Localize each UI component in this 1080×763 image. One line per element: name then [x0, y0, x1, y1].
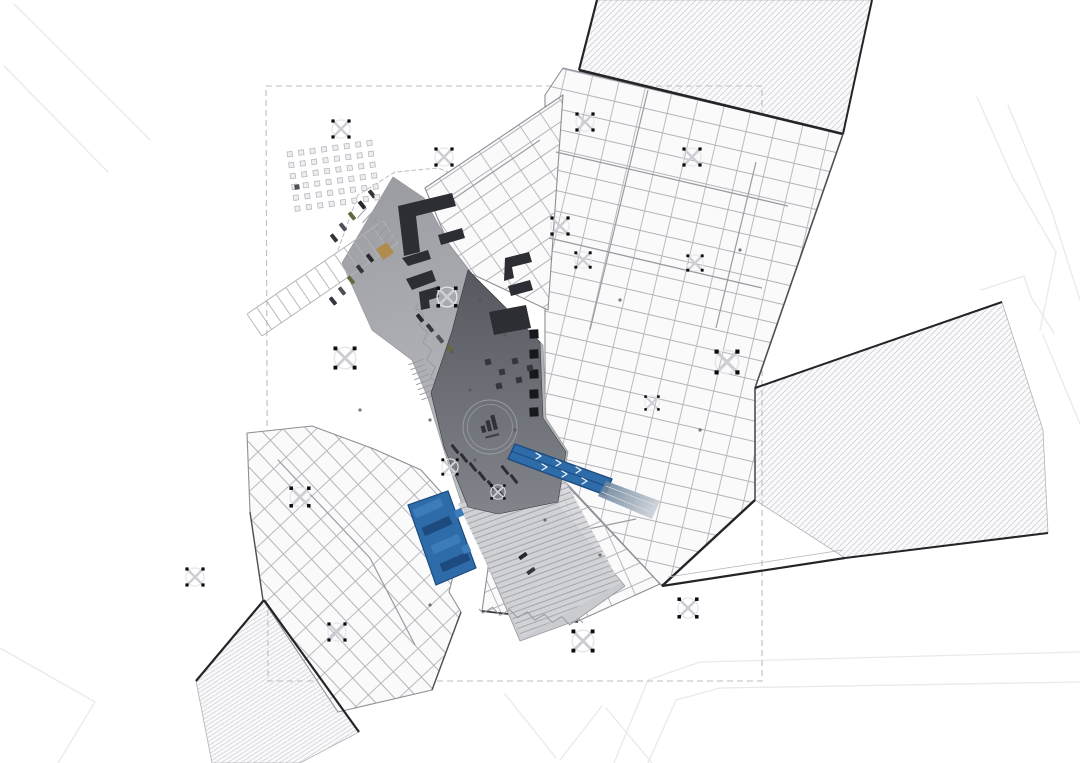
table-grid: [287, 140, 380, 211]
tree-icon: [571, 629, 594, 652]
road-right-2: [1008, 105, 1080, 300]
tree-icon: [333, 346, 356, 369]
tree-icon: [331, 119, 350, 138]
floor-plan-canvas: [0, 0, 1080, 763]
grid-marker: [294, 184, 300, 190]
road-bottom-4: [560, 706, 602, 760]
road-topleft-1: [14, 4, 150, 140]
tree-icon: [677, 597, 698, 618]
tree-icon: [185, 567, 204, 586]
hatch-area-east: [755, 302, 1048, 558]
site-plan-drawing: [0, 0, 1080, 763]
road-bottom-5: [606, 708, 652, 763]
road-right-1: [977, 97, 1056, 330]
tree-icon: [434, 147, 453, 166]
road-bottom-2: [648, 682, 1080, 763]
road-bottom-1: [614, 652, 1080, 763]
road-bottom-3: [505, 694, 556, 758]
road-bottomleft: [0, 648, 95, 763]
road-right-3: [1043, 335, 1080, 424]
site-plan: [0, 0, 1080, 763]
